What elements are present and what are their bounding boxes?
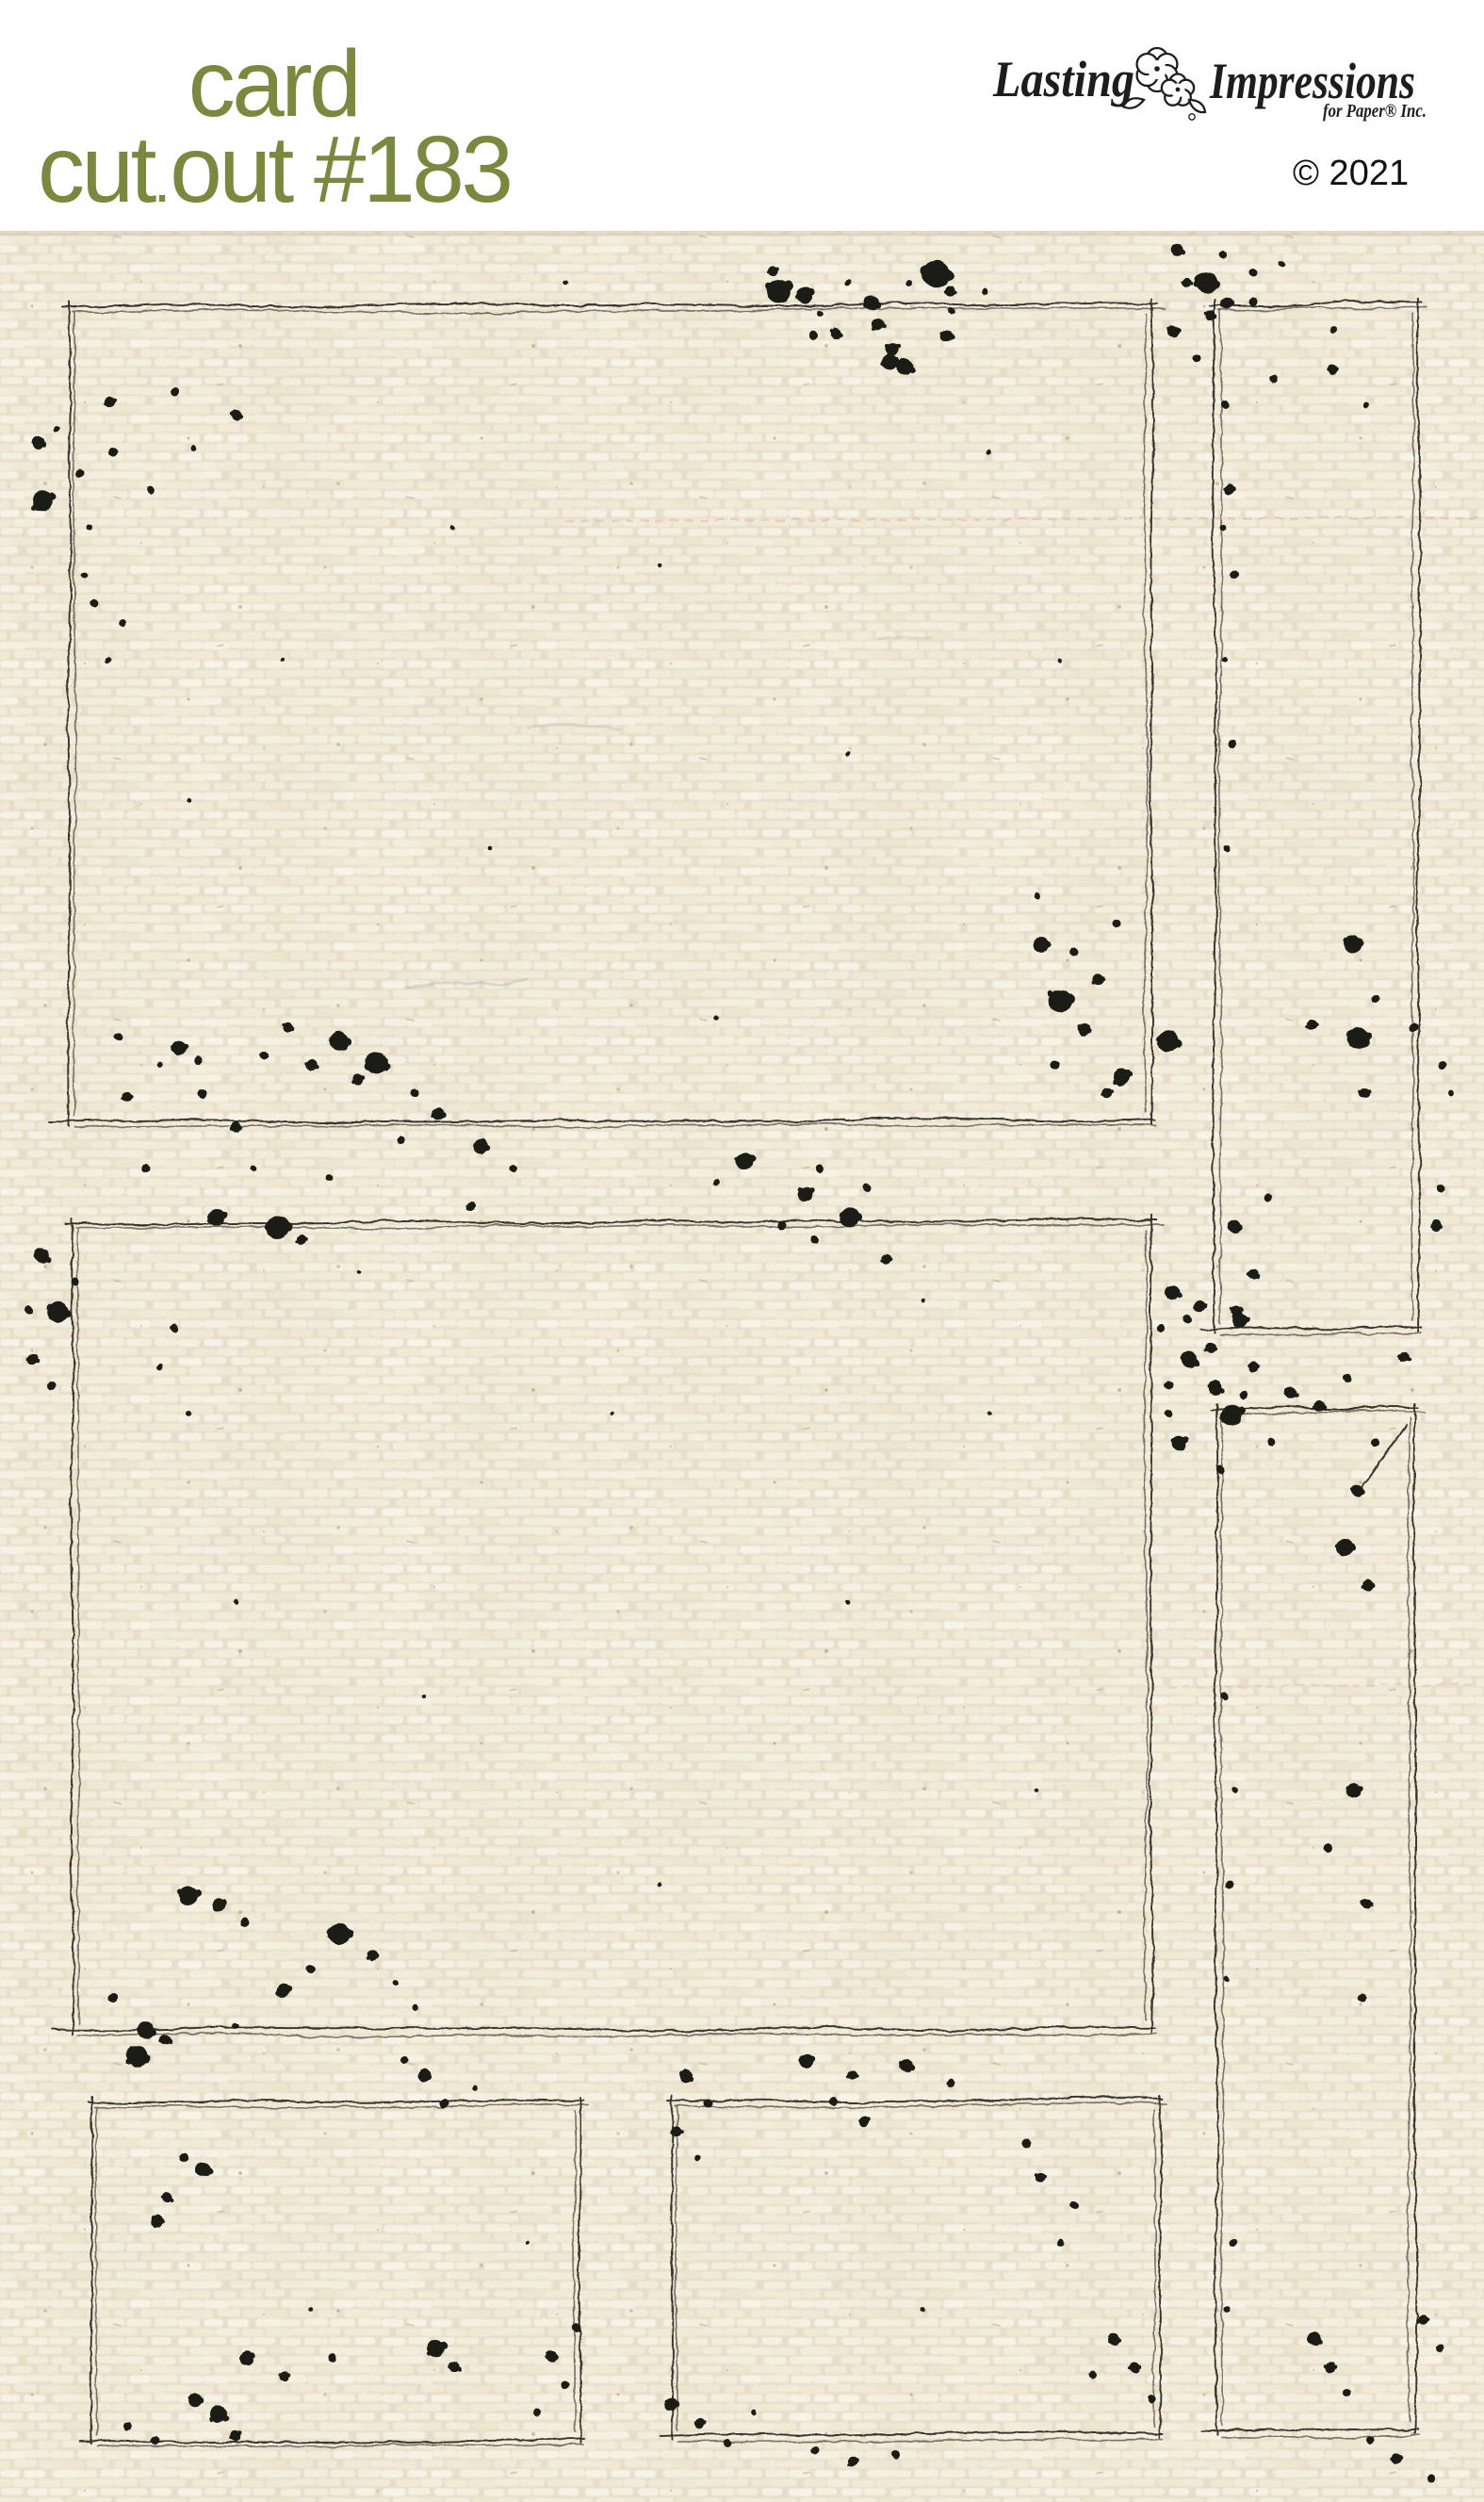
- svg-text:for Paper® Inc.: for Paper® Inc.: [1323, 101, 1427, 122]
- svg-text:Lasting: Lasting: [992, 51, 1134, 107]
